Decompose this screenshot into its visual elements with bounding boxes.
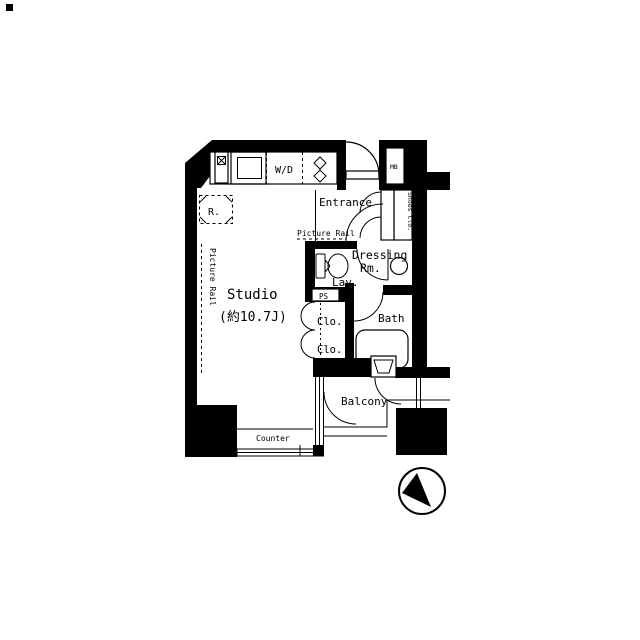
bath-label: Bath [378, 312, 405, 325]
wall-kitchen-right [337, 140, 346, 190]
studio-size-label: (約10.7J) [219, 310, 287, 325]
closet-lower-label: Clo. [317, 344, 342, 356]
corner-mark [6, 4, 13, 11]
window-corner-cap [313, 445, 324, 456]
wall-top-right-step [427, 172, 450, 190]
floorplan-canvas: W/D R. Entrance MB Shoes Clo. Dressing R… [0, 0, 640, 640]
counter-label: Counter [256, 434, 290, 443]
wall-bottom-bar-right [395, 367, 450, 378]
meter-box-label: MB [390, 163, 398, 171]
dressing-label-line1: Dressing [352, 248, 407, 262]
refrigerator-label: R. [208, 207, 220, 218]
window-side [316, 377, 324, 449]
pipe-space-label: PS [319, 292, 329, 301]
lavatory-label: Lav. [332, 276, 359, 289]
closet-upper-label: Clo. [317, 316, 342, 328]
shoes-closet-label: Shoes Clo. [406, 192, 414, 231]
north-arrow-compass [399, 468, 445, 514]
refrigerator-space: R. [200, 196, 233, 224]
balcony-step [371, 356, 396, 377]
entrance-label: Entrance [319, 196, 372, 209]
toilet-icon [328, 254, 348, 278]
closets: Clo. Clo. [301, 302, 342, 358]
wall-dressing-bath [383, 285, 412, 295]
washer-dryer-label: W/D [275, 165, 293, 176]
closet-lower-door-swing [301, 330, 315, 344]
closet-upper-door-swing2 [301, 316, 315, 330]
pillar-bottom-left [185, 405, 237, 457]
picture-rail-top-label: Picture Rail [297, 229, 355, 238]
wall-left [185, 186, 197, 407]
entrance-door-leaf [346, 171, 379, 179]
toilet-tank [316, 254, 325, 278]
kitchen-counter: W/D [210, 152, 337, 184]
kitchen-outline [210, 152, 337, 184]
picture-rail-left-label: Picture Rail [208, 248, 217, 306]
closet-upper-door-swing [301, 302, 315, 316]
floorplan-svg: W/D R. Entrance MB Shoes Clo. Dressing R… [0, 0, 640, 640]
dressing-room: Dressing Rm. [352, 248, 408, 280]
entrance-door-swing [346, 142, 379, 175]
closet-lower-door-swing2 [301, 344, 315, 358]
window-bottom [237, 449, 324, 456]
shoes-cabinet [381, 190, 394, 240]
studio-label: Studio [227, 287, 278, 303]
pillar-bottom-right [396, 408, 447, 455]
shoes-door-swing-lower [360, 217, 381, 238]
balcony-label: Balcony [341, 395, 388, 408]
